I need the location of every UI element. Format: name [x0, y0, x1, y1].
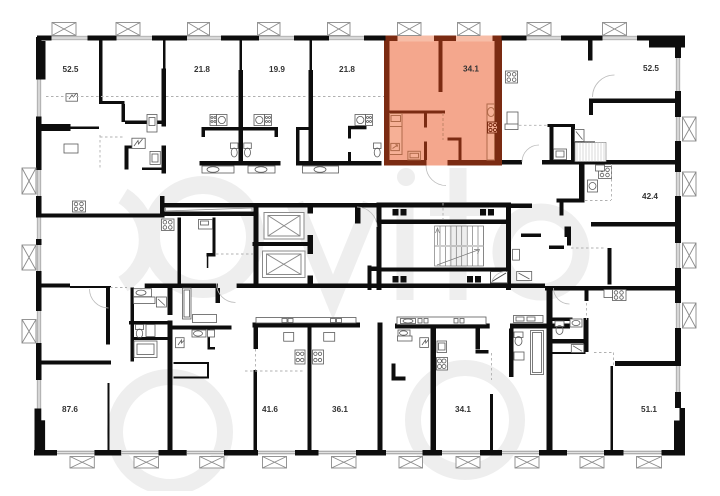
svg-text:34.1: 34.1 [463, 65, 479, 74]
svg-text:51.1: 51.1 [641, 405, 657, 414]
svg-text:34.1: 34.1 [455, 405, 471, 414]
svg-text:42.4: 42.4 [642, 192, 658, 201]
svg-text:21.8: 21.8 [339, 65, 355, 74]
svg-text:52.5: 52.5 [643, 64, 659, 73]
svg-text:87.6: 87.6 [62, 405, 78, 414]
svg-text:36.1: 36.1 [332, 405, 348, 414]
svg-text:41.6: 41.6 [262, 405, 278, 414]
svg-text:19.9: 19.9 [269, 65, 285, 74]
svg-text:21.8: 21.8 [194, 65, 210, 74]
svg-text:52.5: 52.5 [63, 65, 79, 74]
